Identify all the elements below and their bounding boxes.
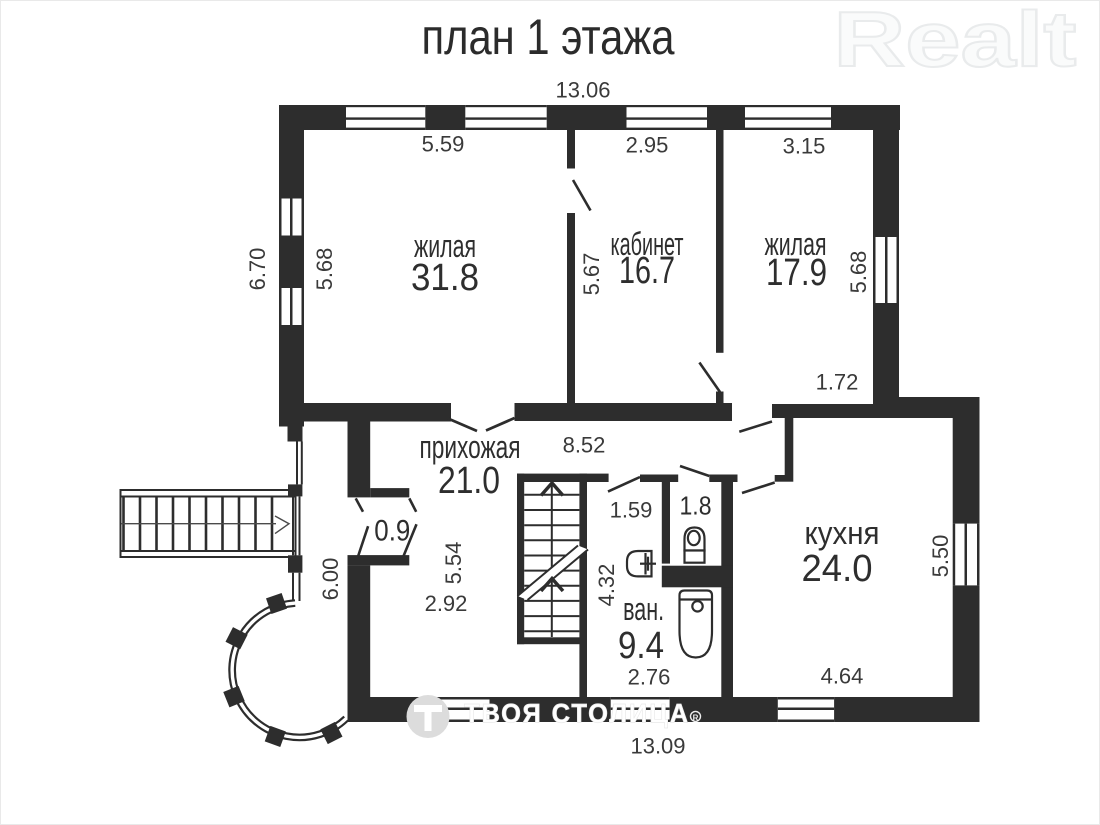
svg-text:13.06: 13.06 xyxy=(555,78,610,103)
svg-text:кухня: кухня xyxy=(805,515,880,551)
svg-text:R: R xyxy=(693,714,699,723)
svg-text:4.64: 4.64 xyxy=(821,664,864,689)
svg-text:1.8: 1.8 xyxy=(680,491,712,521)
svg-text:1.72: 1.72 xyxy=(816,370,859,395)
svg-text:9.4: 9.4 xyxy=(618,625,664,667)
svg-text:0.9: 0.9 xyxy=(374,515,410,548)
svg-text:24.0: 24.0 xyxy=(802,548,873,590)
svg-text:5.68: 5.68 xyxy=(846,251,871,294)
svg-text:ТВОЯ СТОЛИЦА: ТВОЯ СТОЛИЦА xyxy=(464,699,690,729)
svg-text:3.15: 3.15 xyxy=(783,134,826,159)
svg-text:5.68: 5.68 xyxy=(312,248,337,291)
svg-text:Realt: Realt xyxy=(834,0,1077,83)
svg-text:6.70: 6.70 xyxy=(245,248,270,291)
svg-text:6.00: 6.00 xyxy=(318,558,343,601)
svg-text:13.09: 13.09 xyxy=(630,734,685,759)
svg-text:21.0: 21.0 xyxy=(438,460,500,502)
svg-text:16.7: 16.7 xyxy=(619,250,675,292)
svg-text:5.67: 5.67 xyxy=(579,253,604,296)
svg-text:8.52: 8.52 xyxy=(563,433,606,458)
svg-text:5.59: 5.59 xyxy=(422,132,465,157)
svg-text:5.50: 5.50 xyxy=(928,535,953,578)
svg-text:5.54: 5.54 xyxy=(441,542,466,585)
svg-text:4.32: 4.32 xyxy=(594,564,619,607)
svg-text:план 1 этажа: план 1 этажа xyxy=(422,9,675,65)
svg-text:1.59: 1.59 xyxy=(610,498,653,523)
svg-text:31.8: 31.8 xyxy=(411,257,479,299)
svg-text:ван.: ван. xyxy=(623,591,664,627)
svg-text:2.95: 2.95 xyxy=(626,133,669,158)
svg-text:17.9: 17.9 xyxy=(766,252,827,294)
svg-text:2.92: 2.92 xyxy=(425,591,468,616)
svg-text:2.76: 2.76 xyxy=(628,665,671,690)
